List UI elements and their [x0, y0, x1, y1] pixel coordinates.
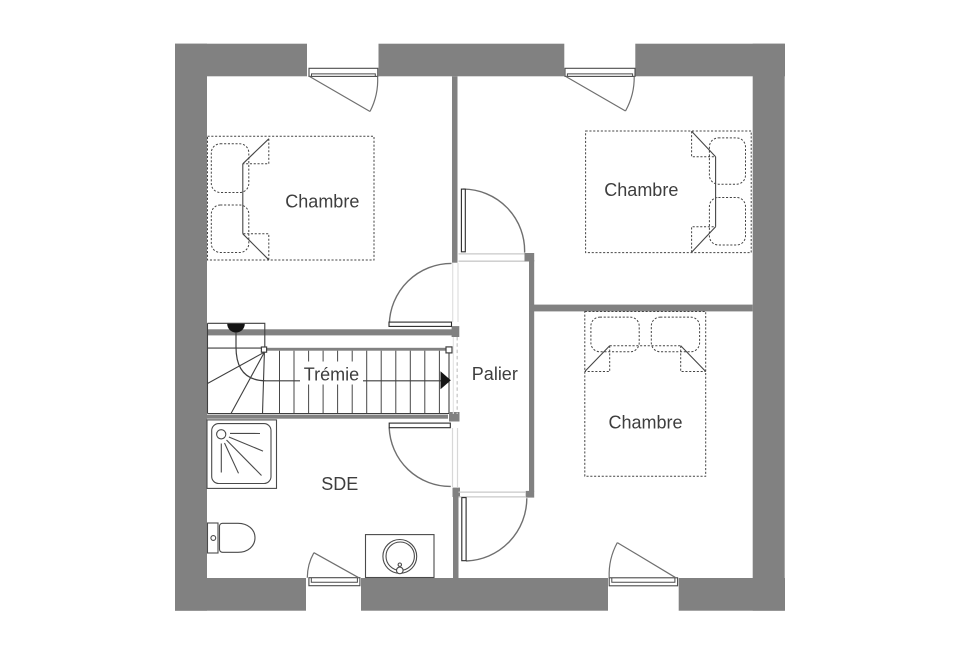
svg-text:Chambre: Chambre	[285, 191, 359, 211]
svg-text:Chambre: Chambre	[609, 412, 683, 432]
svg-text:Trémie: Trémie	[304, 365, 359, 385]
svg-text:Chambre: Chambre	[604, 180, 678, 200]
svg-text:SDE: SDE	[321, 474, 358, 494]
svg-text:Palier: Palier	[472, 364, 518, 384]
